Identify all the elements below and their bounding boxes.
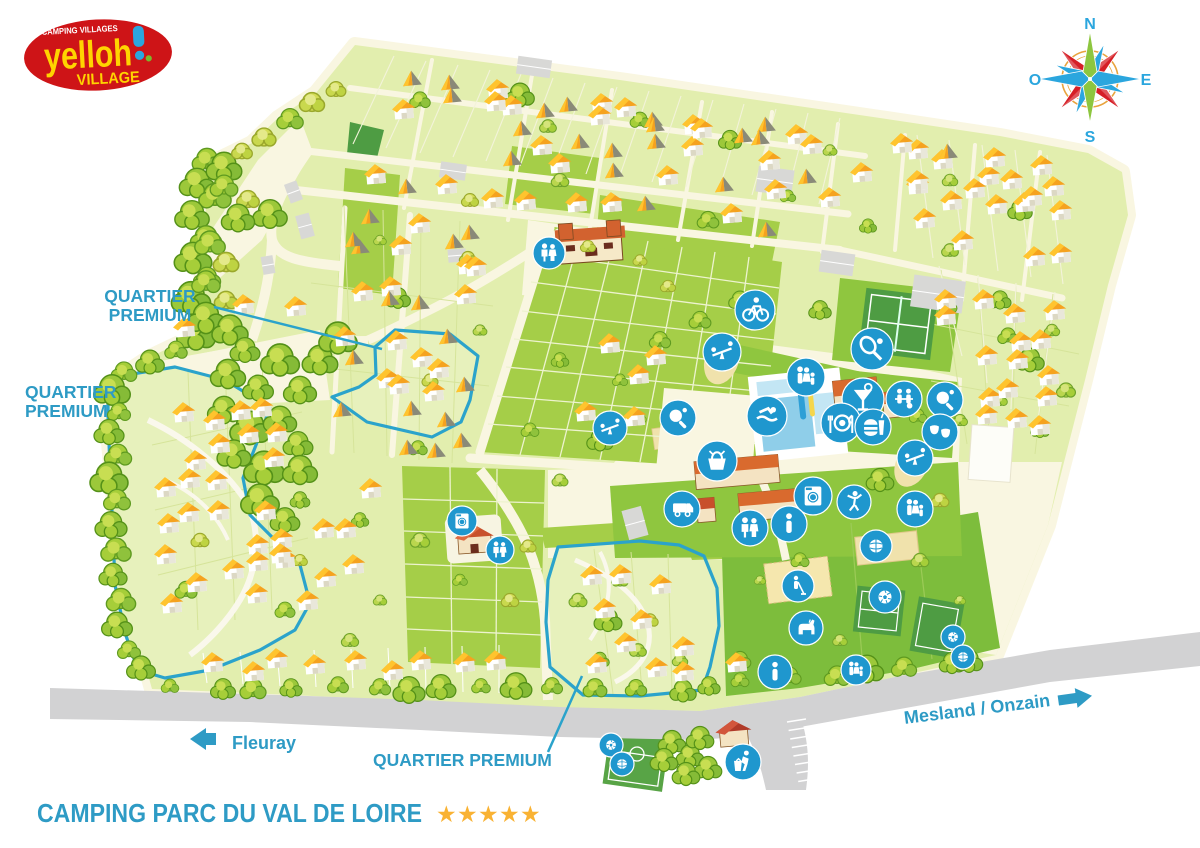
svg-text:Fleuray: Fleuray bbox=[232, 733, 296, 753]
svg-text:QUARTIER PREMIUM: QUARTIER PREMIUM bbox=[373, 750, 552, 770]
svg-text:★: ★ bbox=[478, 801, 499, 827]
svg-text:PREMIUM: PREMIUM bbox=[109, 305, 192, 325]
svg-text:QUARTIER: QUARTIER bbox=[25, 382, 117, 402]
svg-text:★: ★ bbox=[457, 801, 478, 827]
svg-text:CAMPING PARC DU VAL DE LOIRE: CAMPING PARC DU VAL DE LOIRE bbox=[37, 798, 422, 828]
svg-text:★: ★ bbox=[499, 801, 520, 827]
svg-text:★: ★ bbox=[436, 801, 457, 827]
svg-text:O: O bbox=[1029, 72, 1041, 89]
svg-text:N: N bbox=[1084, 16, 1096, 33]
svg-text:S: S bbox=[1085, 129, 1096, 146]
svg-text:QUARTIER: QUARTIER bbox=[104, 286, 196, 306]
svg-text:★: ★ bbox=[520, 801, 541, 827]
svg-text:E: E bbox=[1141, 72, 1152, 89]
svg-text:VILLAGE: VILLAGE bbox=[76, 69, 140, 89]
svg-text:PREMIUM: PREMIUM bbox=[25, 401, 108, 421]
